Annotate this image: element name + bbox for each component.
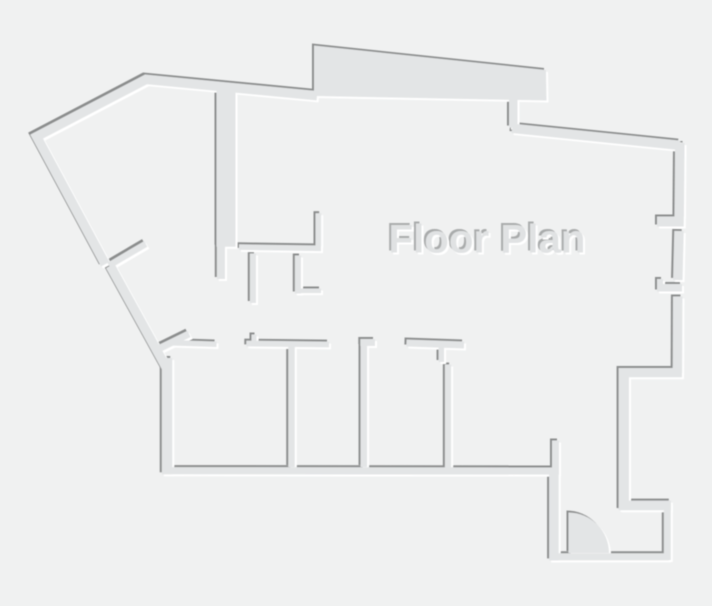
svg-text:Floor Plan: Floor Plan xyxy=(389,217,586,262)
